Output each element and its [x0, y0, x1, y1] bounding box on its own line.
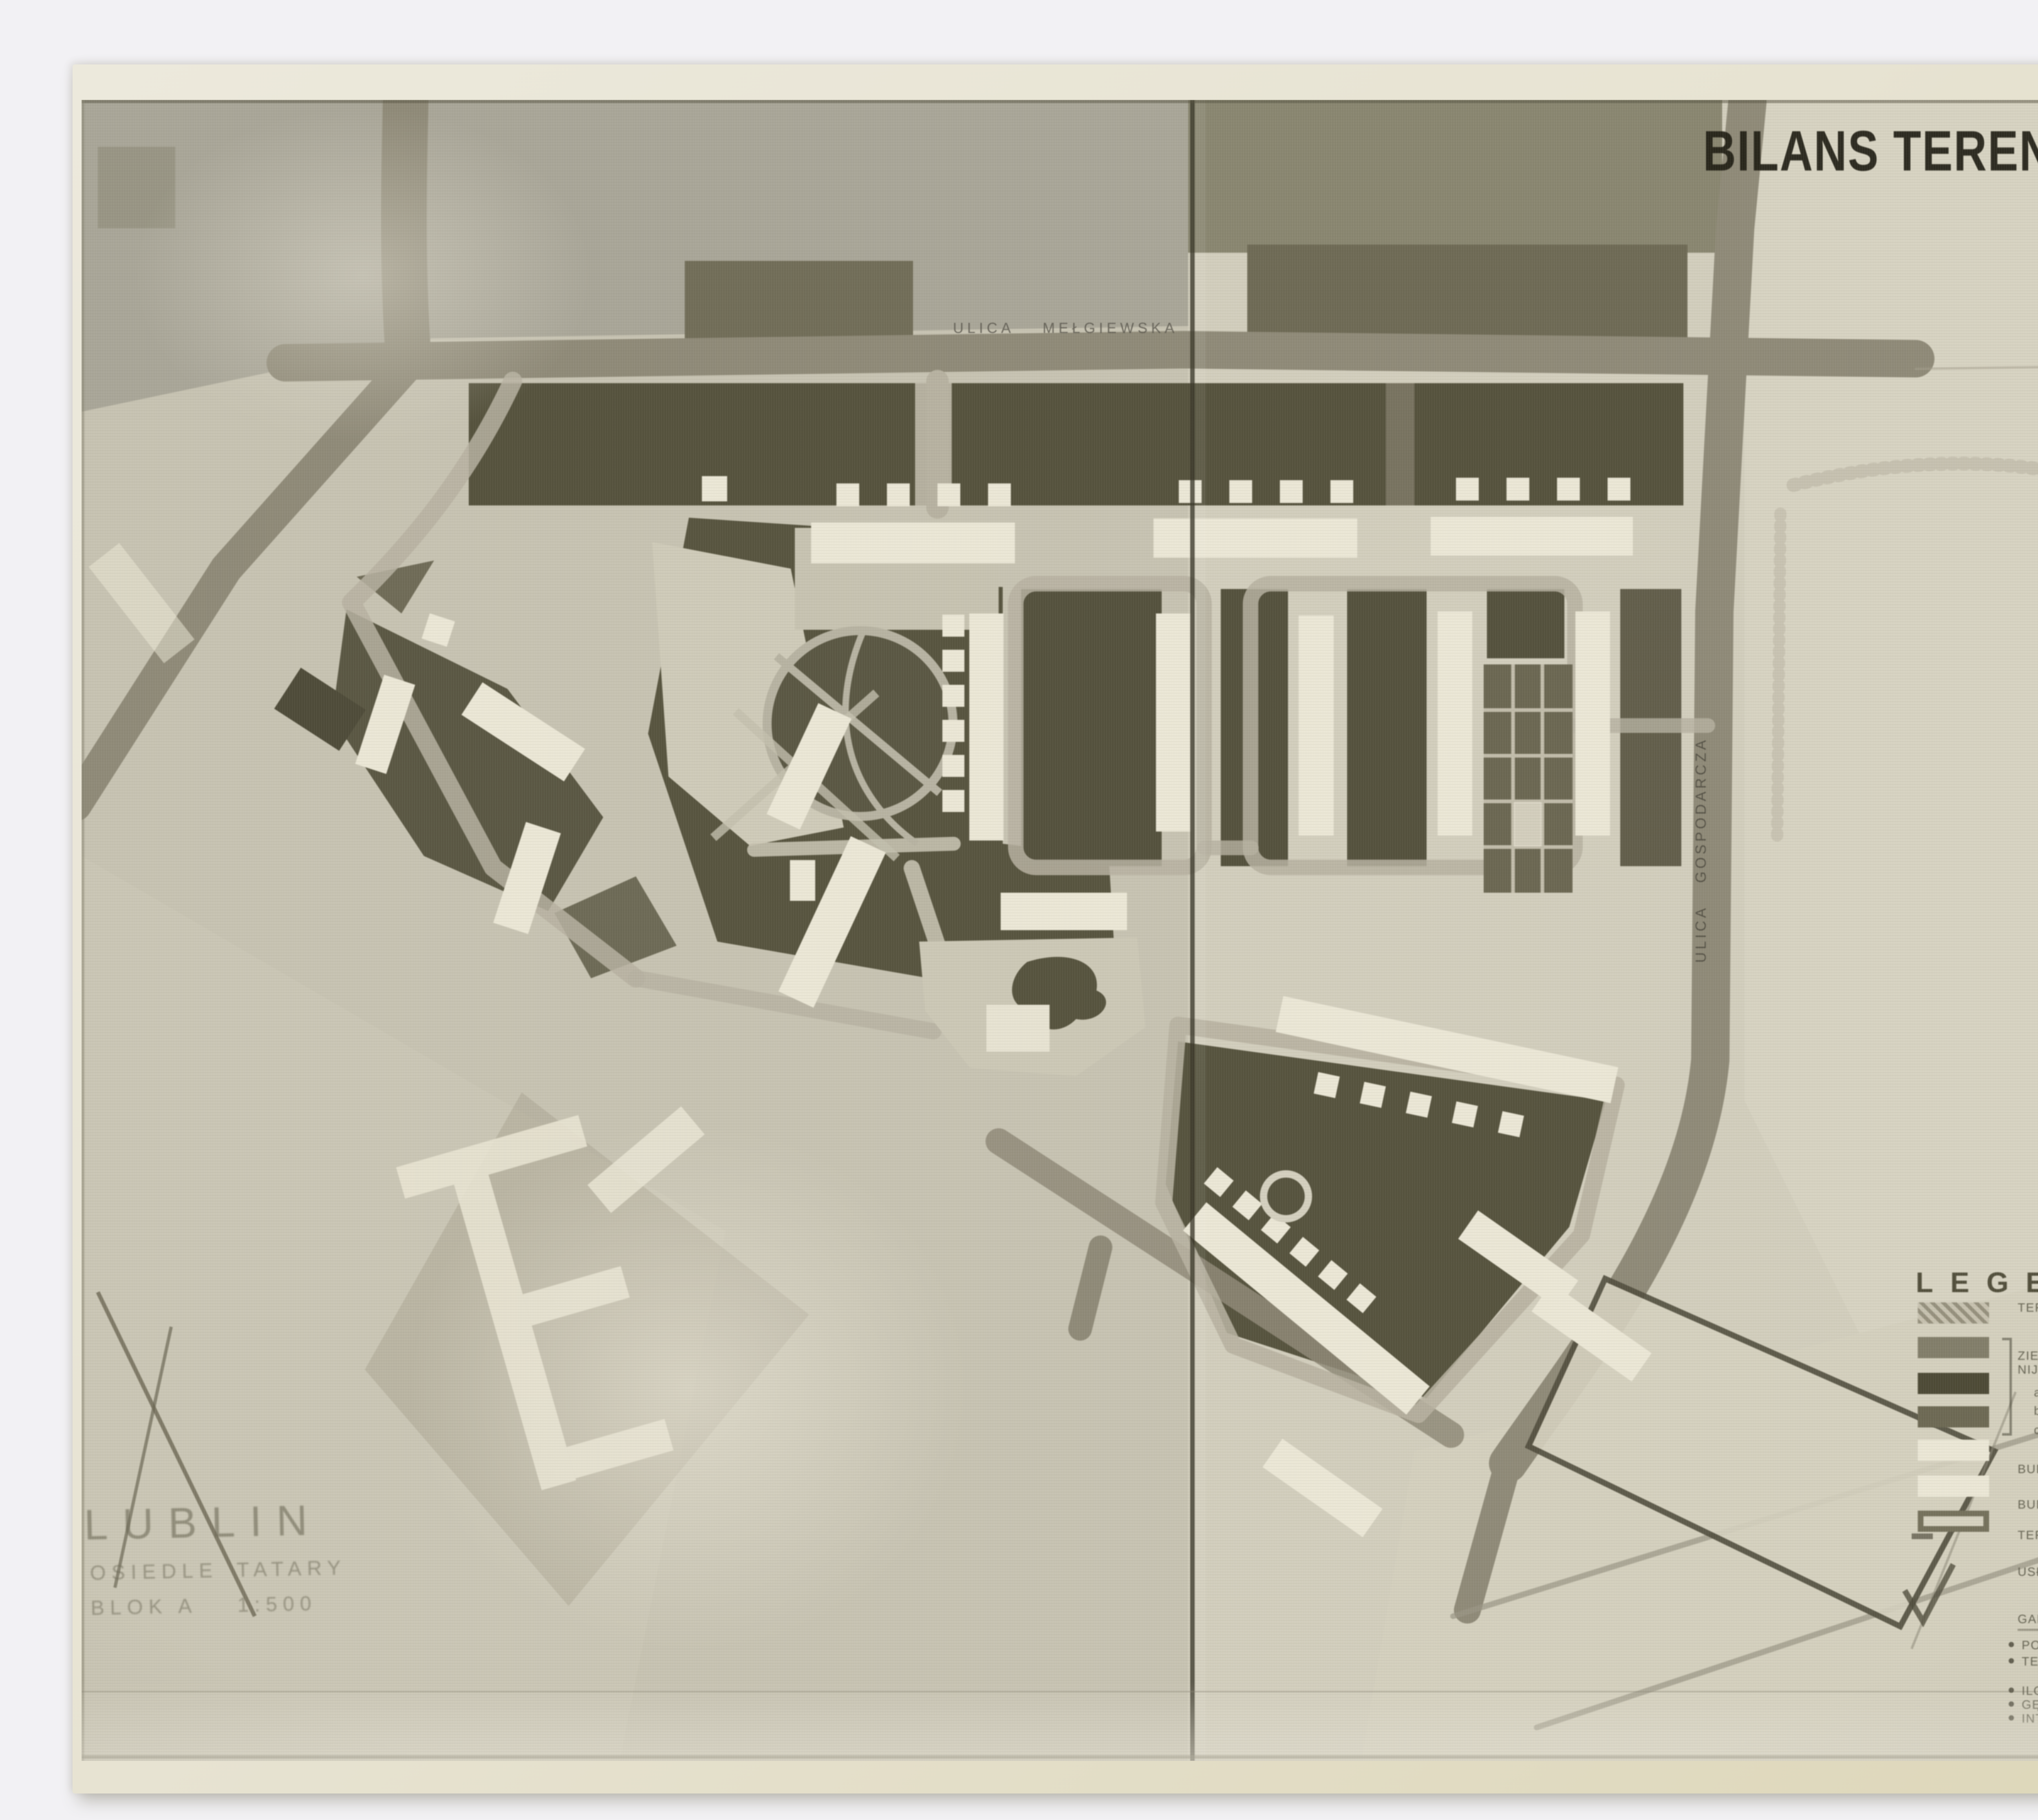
caption-estate-label: OSIEDLE	[90, 1558, 218, 1585]
caption-block-label: BLOK A	[90, 1594, 198, 1619]
legend-swatch-education-buildings	[1918, 1440, 1989, 1461]
legend-swatch-high-green	[1918, 1406, 1989, 1427]
legend-row: NIJNA I WEWNĄTRZBLOKOWA	[2018, 1363, 2038, 1377]
bullet-icon	[2009, 1701, 2014, 1707]
legend-row: TERENY OŚWIATY:	[2018, 1301, 2038, 1315]
legend-swatch-low-green	[1918, 1373, 1989, 1394]
legend-row: GARAŻE	[2018, 1613, 2038, 1626]
legend-row: BUDYNKI MIESZKALNE	[2018, 1498, 2038, 1512]
legend: LEGENDA : TERENY OŚWIATY: SZKOŁA 1.97 ha…	[1899, 1264, 2038, 1741]
caption-estate-name: TATARY	[236, 1556, 346, 1582]
map-title: BILANS TERENU i USŁUG	[1703, 118, 2038, 183]
summary-row: INTENSYWNOŚĆ ZABUDOWY	[2022, 1712, 2038, 1726]
bullet-icon	[2009, 1715, 2014, 1721]
legend-divider	[2018, 1629, 2038, 1631]
drawing-caption: LUBLIN OSIEDLE TATARY BLOK A 1:500	[84, 1496, 324, 1620]
legend-swatch-lawns	[1918, 1337, 1989, 1358]
legend-swatch-education-grounds	[1918, 1302, 1989, 1324]
legend-row: c. ZIELEŃ WYSOKA	[2034, 1423, 2038, 1437]
legend-swatch-prefab-yard	[1918, 1511, 1989, 1532]
caption-city: LUBLIN	[84, 1496, 322, 1550]
summary-row: POWIERZCHNIA BLOKU (A)	[2022, 1639, 2038, 1652]
legend-row: BUDYNKI OŚWIATY – SZKOŁA	[2018, 1463, 2038, 1476]
scanned-photo-page: BILANS TERENU i USŁUG ULICA MEŁGIEWSKA U…	[0, 0, 2038, 1820]
legend-green-bracket	[2002, 1338, 2012, 1436]
garage-court	[1484, 664, 1573, 893]
bullet-icon	[2009, 1688, 2014, 1693]
summary-row: GĘSTOŚĆ ZALUDNIENIA	[2022, 1698, 2038, 1712]
bullet-icon	[2009, 1658, 2014, 1663]
legend-swatch-residential-buildings	[1918, 1476, 1989, 1497]
street-label-melgiewska: ULICA MEŁGIEWSKA	[953, 320, 1178, 337]
legend-heading: LEGENDA :	[1916, 1266, 2038, 1299]
legend-row: b. ZIELEŃ NISKA	[2034, 1404, 2038, 1418]
legend-row: USŁUGI:	[2018, 1565, 2038, 1579]
summary-row: TEREN SZKOŁY	[2022, 1655, 2038, 1669]
legend-row: TEREN POLIGONU DLA PREFABRYK.	[2018, 1529, 2038, 1542]
bullet-icon	[2009, 1642, 2014, 1647]
legend-row: a. TRAWNIKI	[2034, 1386, 2038, 1400]
site-plan-svg	[82, 100, 2038, 1761]
street-label-gospodarcza: ULICA GOSPODARCZA	[1692, 737, 1709, 963]
summary-row: ILOŚĆ LUDNOŚCI W BLOKU (A)	[2022, 1684, 2038, 1698]
caption-map-scale: 1:500	[237, 1591, 317, 1617]
legend-row: ZIELEŃ OSIEDLOWA KOLO-	[2018, 1349, 2038, 1363]
photo-print: BILANS TERENU i USŁUG ULICA MEŁGIEWSKA U…	[82, 100, 2038, 1761]
